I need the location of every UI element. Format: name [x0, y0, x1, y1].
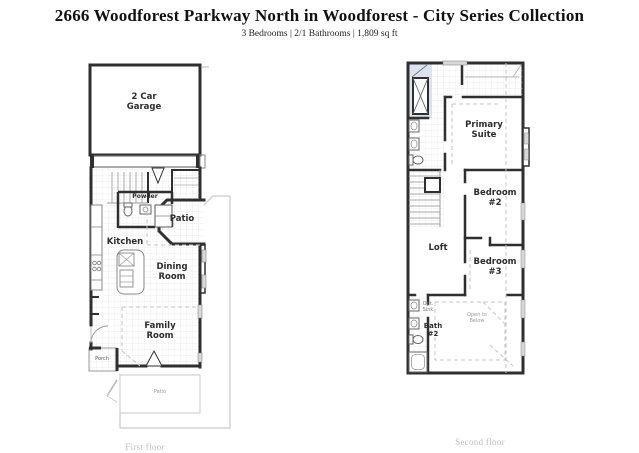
- second-floor-caption: Second floor: [430, 437, 530, 447]
- room-label-powder: Powder: [120, 194, 170, 201]
- kitchen-island: [117, 250, 144, 294]
- room-label-dining-room: Dining Room: [152, 263, 192, 283]
- utility-closet: [172, 170, 200, 200]
- first-floor-drawing: [60, 55, 320, 453]
- room-label-primary-suite: Primary Suite: [460, 121, 508, 141]
- tub-icon: [409, 352, 427, 372]
- page-title: 2666 Woodforest Parkway North in Woodfor…: [0, 6, 639, 26]
- shower-icon: [410, 65, 433, 119]
- room-label-kitchen: Kitchen: [97, 238, 153, 248]
- sink-icon: [409, 300, 419, 311]
- room-label-bedroom-2: Bedroom #2: [470, 189, 520, 209]
- garage-door: [90, 155, 205, 168]
- room-label-bedroom-3: Bedroom #3: [470, 258, 520, 278]
- second-floor-drawing: [395, 52, 545, 402]
- page-subtitle: 3 Bedrooms | 2/1 Bathrooms | 1,809 sq ft: [0, 29, 639, 39]
- sink-icon: [140, 205, 151, 214]
- toilet-icon: [409, 155, 423, 165]
- sink-icon: [409, 120, 419, 132]
- first-floor-caption: First floor: [95, 442, 195, 452]
- second-floor-plan: Primary Suite Bedroom #2 Loft Bedroom #3…: [395, 52, 545, 402]
- room-label-opt-sink: Opt. Sink: [419, 302, 437, 314]
- room-label-open-to-below: Open to Below: [460, 313, 494, 325]
- first-floor-plan: 2 Car Garage Powder Patio Kitchen Dining…: [60, 55, 320, 453]
- room-label-bath-2: Bath #2: [418, 322, 448, 338]
- header: 2666 Woodforest Parkway North in Woodfor…: [0, 6, 639, 39]
- room-label-garage: 2 Car Garage: [122, 93, 166, 113]
- room-label-family-room: Family Room: [140, 322, 180, 342]
- room-label-rear-patio: Patio: [140, 390, 180, 396]
- room-label-patio: Patio: [157, 215, 207, 225]
- room-label-loft: Loft: [413, 244, 463, 254]
- floor-plan-page: 2666 Woodforest Parkway North in Woodfor…: [0, 0, 639, 453]
- sink-icon: [409, 138, 419, 150]
- bay-window: [523, 128, 529, 166]
- toilet-icon: [124, 203, 132, 216]
- room-label-porch: Porch: [82, 357, 122, 363]
